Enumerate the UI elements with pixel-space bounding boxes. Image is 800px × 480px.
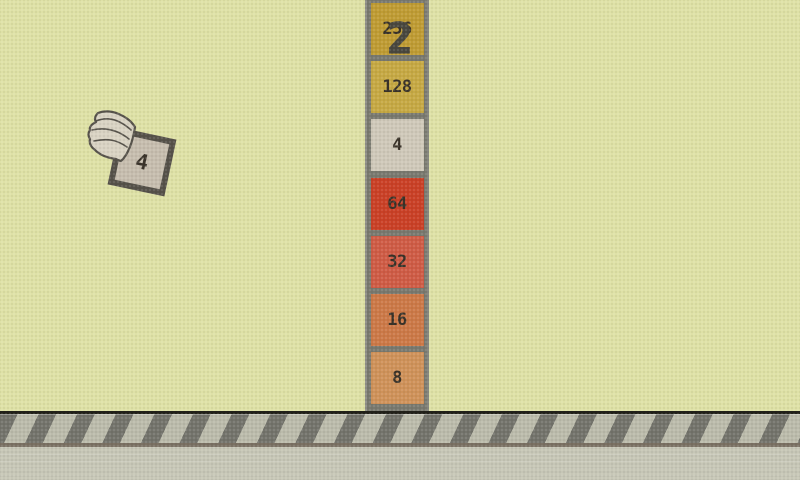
pipe-tile-32: 32 bbox=[371, 236, 424, 288]
game-stage[interactable]: 25612846432168 4 2 bbox=[0, 0, 800, 480]
pipe-tile-16: 16 bbox=[371, 294, 424, 346]
pipe-tile-4: 4 bbox=[371, 119, 424, 171]
pipe-tile-value: 8 bbox=[392, 368, 402, 388]
ground-base bbox=[0, 447, 800, 480]
wing-icon bbox=[84, 103, 146, 167]
pipe-tile-value: 32 bbox=[387, 252, 406, 272]
pipe-tile-value: 4 bbox=[392, 135, 402, 155]
pipe-tile-value: 16 bbox=[387, 310, 406, 330]
ground bbox=[0, 411, 800, 480]
score-display: 2 bbox=[0, 18, 800, 60]
pipe-tile-64: 64 bbox=[371, 178, 424, 230]
pipe-tile-value: 64 bbox=[387, 194, 406, 214]
ground-hazard-stripes bbox=[0, 414, 800, 443]
pipe-tile-value: 128 bbox=[382, 77, 411, 97]
pipe-tile-8: 8 bbox=[371, 352, 424, 404]
pipe-tile-128: 128 bbox=[371, 61, 424, 113]
